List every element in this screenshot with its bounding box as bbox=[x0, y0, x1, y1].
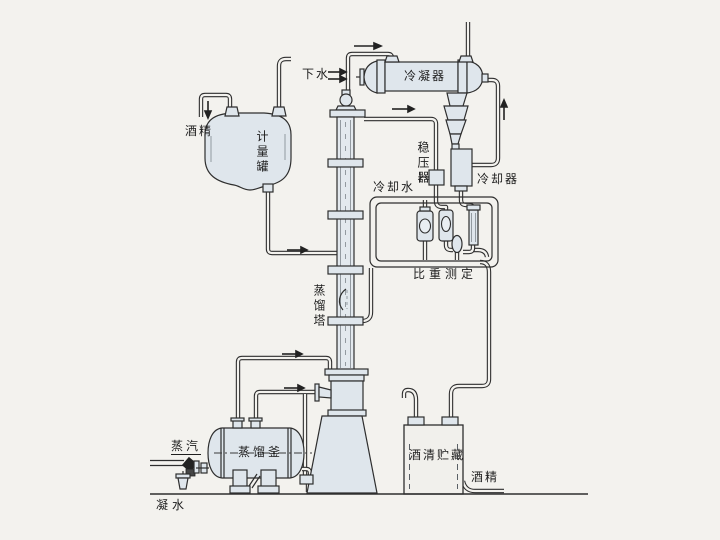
sight-glass-middle bbox=[439, 210, 453, 241]
float-bulb bbox=[452, 236, 462, 253]
sight-glass-left bbox=[417, 207, 433, 241]
flow-arrow-top-icon bbox=[354, 43, 381, 49]
alcohol-storage-label: 酒清贮藏 bbox=[409, 449, 465, 462]
cooler-label: 冷却器 bbox=[477, 173, 519, 186]
steam-label: 蒸汽 bbox=[171, 440, 201, 455]
tower-to-bath-line bbox=[355, 268, 371, 321]
alcohol-feed-arrow-icon bbox=[205, 101, 211, 118]
reducer-stack bbox=[444, 93, 468, 150]
distillation-kettle-label: 蒸馏釜 bbox=[238, 446, 283, 459]
measuring-tank-vessel bbox=[205, 107, 291, 192]
measuring-tank-label: 计量罐 bbox=[256, 130, 268, 175]
kettle-riser-lower bbox=[256, 392, 317, 420]
distillation-tower-column bbox=[328, 90, 365, 370]
measuring-tank-feed-line bbox=[268, 191, 339, 253]
stabilizer-line bbox=[364, 119, 446, 212]
drain-water-arrows-icon bbox=[328, 69, 346, 82]
distillation-tower-label: 蒸馏塔 bbox=[313, 284, 325, 329]
cooling-water-return-line bbox=[470, 80, 498, 165]
drain-water-label: 下水 bbox=[302, 68, 330, 81]
alcohol-outlet-label: 酒精 bbox=[471, 471, 499, 484]
tower-base bbox=[307, 369, 377, 493]
measuring-tank-vent-pipe bbox=[279, 59, 292, 108]
hydrometer-tube bbox=[467, 205, 480, 245]
pressure-stabilizer-label: 稳压器 bbox=[417, 141, 429, 186]
condensate-label: 凝水 bbox=[156, 499, 188, 512]
specific-gravity-label: 比重测定 bbox=[413, 268, 477, 281]
cooling-water-label: 冷却水 bbox=[373, 181, 415, 194]
cooler-vessel bbox=[451, 149, 472, 191]
storage-vent-pipe bbox=[404, 390, 416, 418]
diagram-line-art bbox=[0, 0, 720, 540]
flow-arrow-stabilizer-icon bbox=[392, 106, 414, 112]
alcohol-feed-label: 酒精 bbox=[185, 125, 213, 138]
process-diagram: 下水 冷凝器 酒精 计量罐 稳压器 冷却水 冷却器 比重测定 蒸馏塔 蒸馏釜 蒸… bbox=[0, 0, 720, 540]
condenser-label: 冷凝器 bbox=[404, 70, 446, 83]
steam-piping bbox=[150, 458, 209, 489]
flow-arrow-up-icon bbox=[501, 100, 507, 120]
